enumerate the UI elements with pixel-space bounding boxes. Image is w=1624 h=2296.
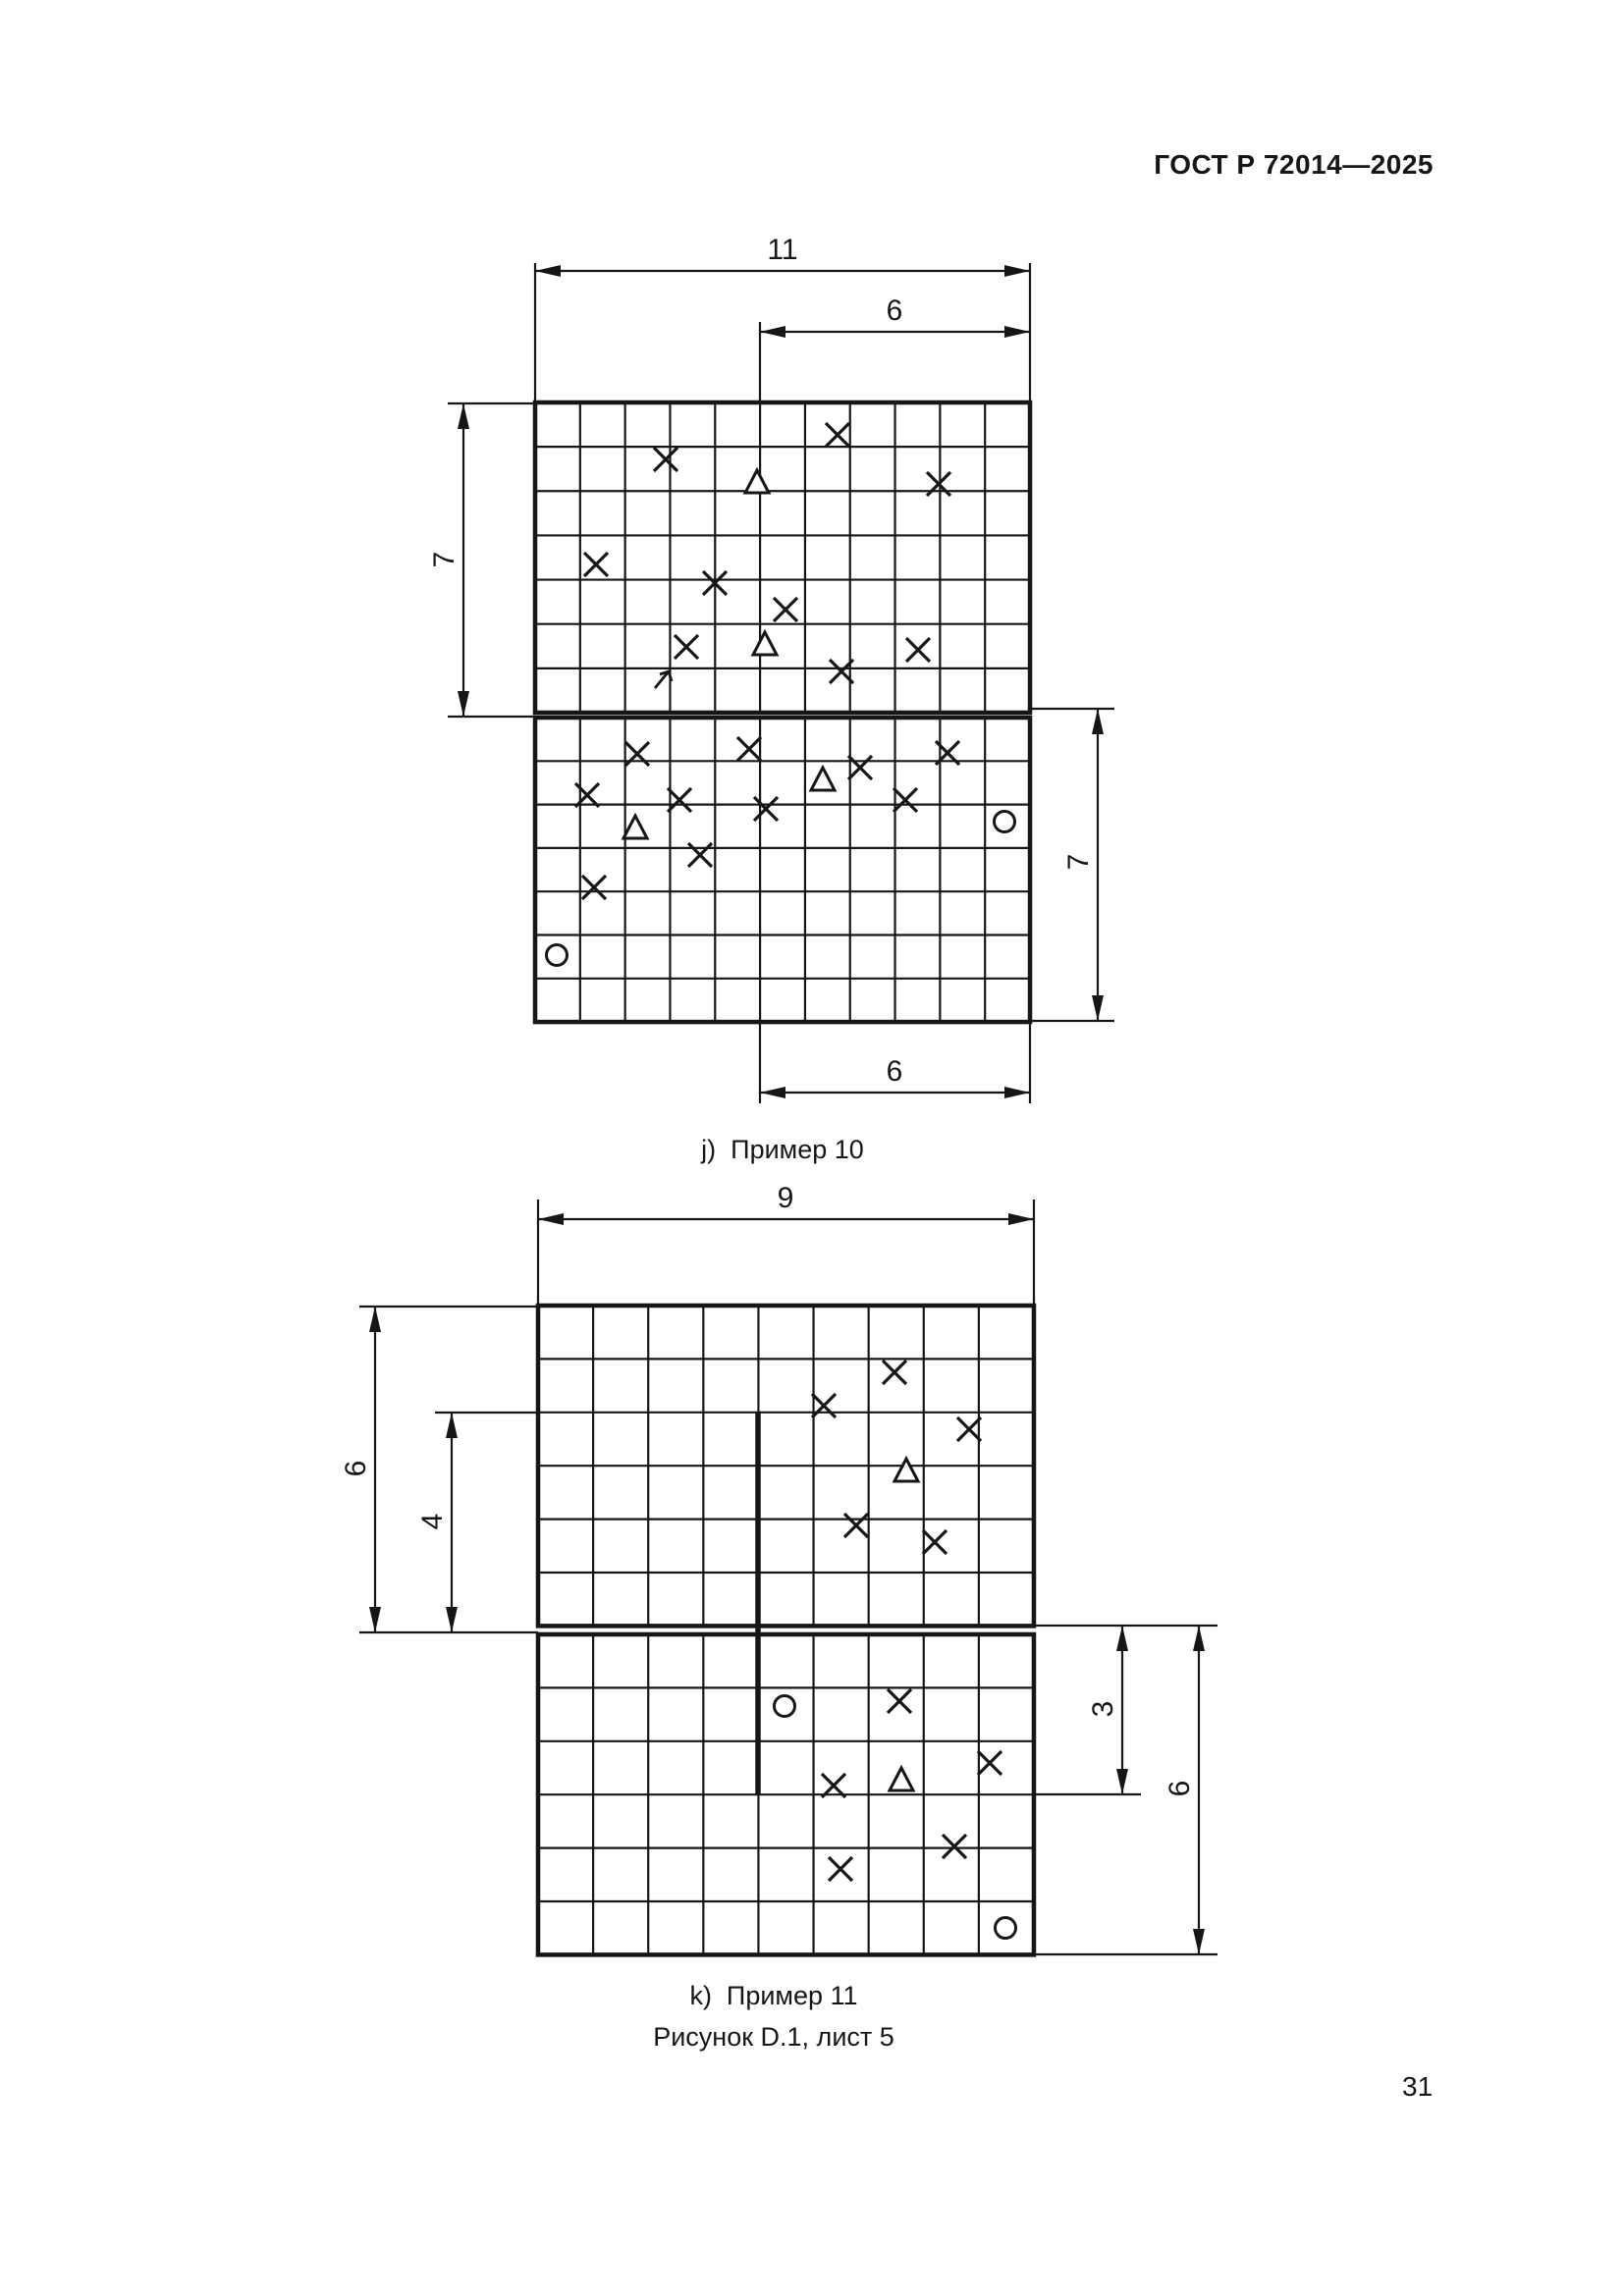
dimension-arrowhead: [1092, 709, 1104, 734]
dimension-arrowhead: [760, 1087, 785, 1098]
defect-triangle-marker: [890, 1768, 913, 1790]
dimension-arrowhead: [458, 403, 469, 429]
dimension-arrowhead: [1004, 265, 1030, 277]
defect-circle-marker: [547, 945, 568, 966]
defect-triangle-marker: [894, 1459, 918, 1481]
dimension-arrowhead: [1008, 1213, 1034, 1225]
dimension-arrowhead: [1193, 1929, 1205, 1954]
dimension-arrowhead: [1116, 1626, 1128, 1651]
dimension-arrowhead: [535, 265, 561, 277]
dimension-label: 6: [340, 1461, 372, 1477]
dimension-arrowhead: [446, 1413, 458, 1438]
dimension-arrowhead: [1092, 995, 1104, 1021]
dimension-label: 11: [767, 234, 797, 266]
figure-caption: Рисунок D.1, лист 5: [653, 2022, 894, 2053]
dimension-label: 6: [1164, 1781, 1196, 1797]
dimension-arrowhead: [1004, 326, 1030, 338]
defect-circle-marker: [996, 1918, 1016, 1939]
dimension-arrowhead: [446, 1607, 458, 1632]
dimension-label: 6: [887, 1055, 903, 1088]
dimension-label: 4: [416, 1514, 449, 1530]
dimension-label: 7: [1062, 854, 1095, 871]
defect-triangle-marker: [745, 470, 769, 493]
document-page: ГОСТ Р 72014—2025 11677696436 j) Пример …: [0, 0, 1624, 2296]
dimension-arrowhead: [1193, 1626, 1205, 1651]
dimension-arrowhead: [538, 1213, 564, 1225]
caption-example-10: j) Пример 10: [701, 1135, 864, 1165]
defect-triangle-marker: [623, 816, 647, 838]
defect-circle-marker: [775, 1696, 795, 1717]
defect-triangle-marker: [753, 632, 777, 655]
dimension-label: 3: [1087, 1701, 1119, 1718]
dimension-label: 6: [887, 294, 903, 327]
dimension-arrowhead: [369, 1607, 381, 1632]
dimension-arrowhead: [458, 691, 469, 717]
dimension-arrowhead: [760, 326, 785, 338]
dimension-label: 9: [778, 1182, 794, 1214]
example10-upper-grid: [535, 402, 1030, 713]
caption-example-11: k) Пример 11: [689, 1981, 857, 2011]
defect-circle-marker: [995, 812, 1015, 832]
page-number: 31: [1402, 2071, 1433, 2103]
dimension-arrowhead: [369, 1307, 381, 1332]
defect-triangle-marker: [811, 768, 835, 790]
dimension-arrowhead: [1116, 1769, 1128, 1794]
dimension-label: 7: [428, 552, 460, 568]
dimension-arrowhead: [1004, 1087, 1030, 1098]
